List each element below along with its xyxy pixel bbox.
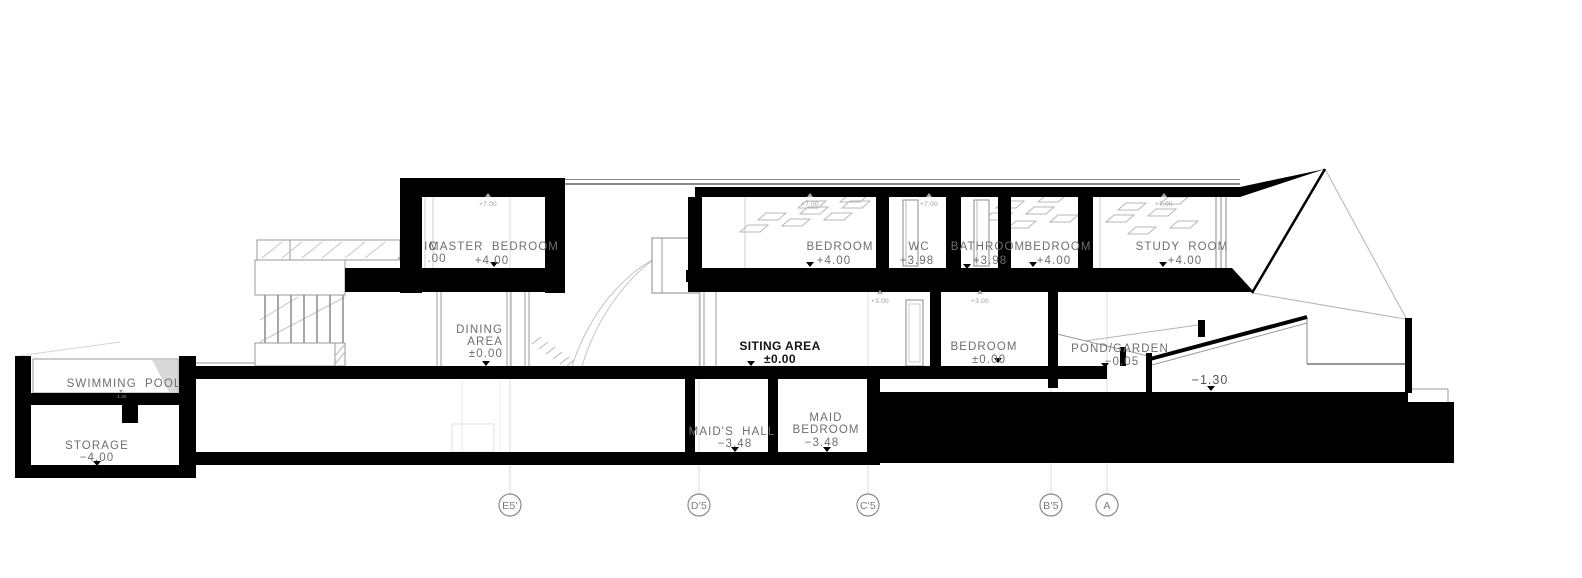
label-wc-level: +3.98 bbox=[900, 255, 935, 267]
floor-slab-right bbox=[695, 268, 1254, 292]
label-maid-bedroom-2: BEDROOM bbox=[792, 424, 859, 436]
label-roof-level-4: +7.00 bbox=[1155, 201, 1173, 208]
label-bathroom: BATHROOM bbox=[951, 241, 1025, 253]
label-bedroom-upper-2-level: +4.00 bbox=[1037, 255, 1072, 267]
storage-right-wall bbox=[179, 356, 196, 478]
roof-slab-left bbox=[400, 178, 565, 197]
grid-bubble-c5: C'5 bbox=[857, 494, 879, 516]
section-drawing-canvas: IC + .00 bbox=[0, 0, 1582, 578]
label-siting-area: SITING AREA bbox=[739, 339, 820, 353]
label-dining-area-1: DINING bbox=[456, 324, 503, 336]
label-storage: STORAGE bbox=[65, 440, 129, 452]
roof-slab-right bbox=[695, 187, 1240, 197]
floor-slab-left bbox=[345, 268, 565, 292]
label-maids-hall: MAID'S HALL bbox=[689, 426, 776, 438]
pool-floor bbox=[28, 393, 195, 405]
label-maids-hall-level: −3.48 bbox=[718, 438, 753, 450]
building-section-drawing: IC + .00 bbox=[0, 0, 1582, 578]
label-roof-level-1: +7.00 bbox=[479, 201, 497, 208]
label-study-room-level: +4.00 bbox=[1168, 255, 1203, 267]
grid-bubble-d5-label: D'5 bbox=[691, 500, 707, 512]
label-master-bedroom: MASTER BEDROOM bbox=[429, 241, 559, 253]
label-dining-area-2: AREA bbox=[467, 336, 503, 348]
label-pond-garden-level: −0.05 bbox=[1105, 356, 1140, 368]
lower-terrace bbox=[1307, 317, 1448, 402]
label-bedroom-ground: BEDROOM bbox=[950, 341, 1017, 353]
label-terrace-level: −1.30 bbox=[1192, 373, 1229, 387]
grid-bubbles: E5' D'5 C'5 B'5 A bbox=[499, 494, 1118, 516]
basement-fixture bbox=[452, 424, 494, 452]
label-pool-water-level: -1.35 bbox=[116, 394, 127, 399]
label-roof-level-2: +7.00 bbox=[801, 201, 819, 208]
grid-bubble-b5: B'5 bbox=[1040, 494, 1062, 516]
grid-bubble-d5: D'5 bbox=[688, 494, 710, 516]
label-wc: WC bbox=[908, 241, 929, 253]
ground-fill-mass bbox=[880, 392, 1454, 463]
label-bedroom-upper-2: BEDROOM bbox=[1024, 241, 1091, 253]
label-maid-bedroom-1: MAID bbox=[809, 412, 842, 424]
stair-hatch bbox=[532, 337, 574, 366]
label-pond-garden: POND/GARDEN bbox=[1071, 343, 1169, 355]
storage-floor bbox=[15, 465, 196, 478]
terrace-structure bbox=[255, 240, 400, 366]
grid-bubble-a: A bbox=[1096, 494, 1118, 516]
grid-bubble-b5-label: B'5 bbox=[1043, 500, 1059, 512]
grid-bubble-c5-label: C'5 bbox=[860, 500, 876, 512]
pool-left-wall bbox=[15, 356, 31, 478]
label-bedroom-upper: BEDROOM bbox=[806, 241, 873, 253]
label-storage-level: −4.00 bbox=[80, 452, 115, 464]
hidden-room-level-dec: .00 bbox=[427, 253, 446, 265]
right-boundary-wall bbox=[1405, 318, 1412, 393]
label-study-room: STUDY ROOM bbox=[1136, 241, 1229, 253]
label-bedroom-upper-level: +4.00 bbox=[817, 255, 852, 267]
garden-ramp bbox=[1150, 317, 1307, 359]
ground-slab bbox=[190, 366, 1107, 379]
label-maid-bedroom-level: −3.48 bbox=[805, 437, 840, 449]
label-dining-area-level: ±0.00 bbox=[469, 348, 503, 360]
grid-bubble-a-label: A bbox=[1103, 500, 1110, 512]
terrace-balusters bbox=[265, 295, 343, 343]
ground-door-frame bbox=[906, 300, 923, 366]
label-roof-level-3: +7.00 bbox=[920, 201, 938, 208]
label-bathroom-level: +3.98 bbox=[973, 255, 1008, 267]
label-siting-area-level: ±0.00 bbox=[764, 352, 796, 366]
label-master-bedroom-level: +4.00 bbox=[475, 255, 510, 267]
label-mid-level-2: +3.00 bbox=[971, 298, 989, 305]
grid-bubble-e5: E5' bbox=[499, 494, 521, 516]
label-swimming-pool: SWIMMING POOL bbox=[67, 378, 182, 390]
grid-bubble-e5-label: E5' bbox=[502, 500, 518, 512]
label-bedroom-ground-level: ±0.00 bbox=[972, 354, 1006, 366]
label-mid-level-1: +3.00 bbox=[871, 298, 889, 305]
